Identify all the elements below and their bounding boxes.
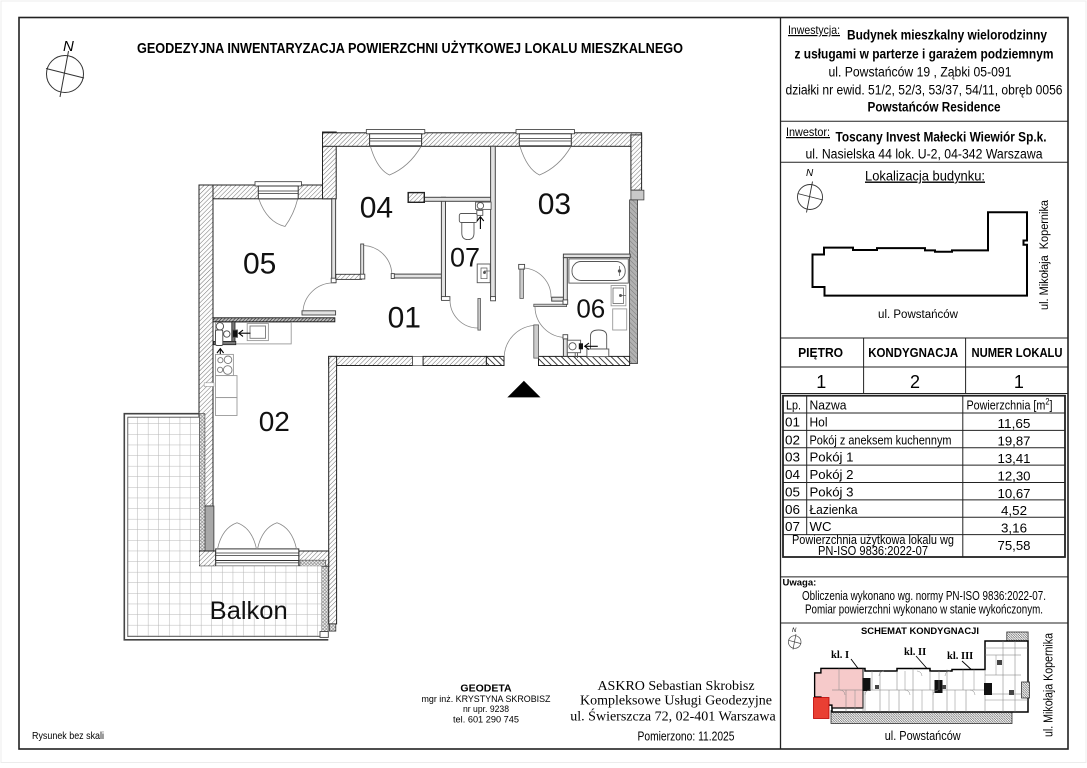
svg-text:Balkon: Balkon — [210, 597, 288, 625]
svg-text:tel. 601 290 745: tel. 601 290 745 — [453, 715, 519, 726]
svg-text:kl. II: kl. II — [904, 647, 926, 658]
svg-text:ul. Powstańców 19 , Ząbki 05-0: ul. Powstańców 19 , Ząbki 05-091 — [829, 65, 1012, 80]
svg-text:GEODETA: GEODETA — [460, 683, 512, 695]
svg-text:GEODEZYJNA INWENTARYZACJA POWI: GEODEZYJNA INWENTARYZACJA POWIERZCHNI UŻ… — [137, 40, 683, 57]
svg-text:1: 1 — [1014, 372, 1024, 392]
svg-text:01: 01 — [785, 415, 800, 430]
svg-text:05: 05 — [785, 485, 800, 500]
svg-text:Pokój 1: Pokój 1 — [810, 450, 854, 465]
svg-text:ul. Powstańców: ul. Powstańców — [878, 309, 959, 321]
svg-text:Powierzchnia [m2]: Powierzchnia [m2] — [967, 397, 1053, 413]
svg-text:Kompleksowe Usługi Geodezyjne: Kompleksowe Usługi Geodezyjne — [580, 694, 772, 709]
svg-text:10,67: 10,67 — [998, 486, 1031, 501]
svg-text:Pokój 2: Pokój 2 — [810, 467, 854, 482]
svg-text:13,41: 13,41 — [998, 451, 1031, 466]
svg-text:06: 06 — [576, 294, 605, 324]
svg-text:Budynek mieszkalny wielorodzin: Budynek mieszkalny wielorodzinny — [847, 28, 1047, 43]
svg-text:Pokój z aneksem kuchennym: Pokój z aneksem kuchennym — [810, 432, 952, 447]
svg-text:N: N — [806, 168, 814, 179]
svg-text:19,87: 19,87 — [998, 434, 1031, 449]
svg-text:07: 07 — [450, 243, 480, 273]
svg-text:N: N — [792, 628, 797, 634]
svg-text:działki nr ewid. 51/2, 52/3, 5: działki nr ewid. 51/2, 52/3, 53/37, 54/1… — [786, 83, 1063, 98]
svg-text:Pomierzono: 11.2025: Pomierzono: 11.2025 — [638, 730, 735, 744]
svg-text:ASKRO Sebastian Skrobisz: ASKRO Sebastian Skrobisz — [597, 679, 754, 694]
svg-text:Uwaga:: Uwaga: — [783, 578, 817, 589]
svg-text:SCHEMAT KONDYGNACJI: SCHEMAT KONDYGNACJI — [861, 626, 979, 637]
svg-text:z usługami w parterze i garaże: z usługami w parterze i garażem podziemn… — [795, 47, 1054, 62]
svg-text:Łazienka: Łazienka — [810, 502, 859, 517]
svg-text:ul. Powstańców: ul. Powstańców — [885, 729, 962, 743]
svg-text:06: 06 — [785, 502, 800, 517]
svg-text:03: 03 — [785, 450, 800, 465]
svg-text:Powstańców Residence: Powstańców Residence — [868, 100, 1001, 115]
svg-text:12,30: 12,30 — [998, 468, 1031, 483]
svg-text:4,52: 4,52 — [1001, 503, 1027, 518]
svg-text:kl. III: kl. III — [947, 651, 973, 662]
svg-text:11,65: 11,65 — [998, 416, 1031, 431]
svg-text:ul. Nasielska 44 lok. U-2, 04-: ul. Nasielska 44 lok. U-2, 04-342 Warsza… — [806, 147, 1043, 162]
svg-text:ul. Mikołaja Kopernika: ul. Mikołaja Kopernika — [1042, 633, 1056, 737]
svg-text:N: N — [63, 38, 74, 55]
svg-text:Lp.: Lp. — [786, 398, 801, 413]
svg-text:PIĘTRO: PIĘTRO — [798, 345, 843, 360]
svg-text:Nazwa: Nazwa — [810, 398, 848, 413]
svg-text:02: 02 — [785, 432, 800, 447]
svg-text:ul. Świerszcza 72, 02-401 Wars: ul. Świerszcza 72, 02-401 Warszawa — [570, 708, 776, 725]
svg-text:3,16: 3,16 — [1001, 520, 1027, 535]
svg-text:Hol: Hol — [810, 415, 828, 430]
svg-text:03: 03 — [538, 188, 571, 221]
svg-text:Pomiar powierzchni wykonano w: Pomiar powierzchni wykonano w stanie wyk… — [805, 603, 1043, 617]
svg-text:kl. I: kl. I — [831, 650, 849, 661]
svg-text:01: 01 — [388, 301, 421, 334]
svg-text:Lokalizacja budynku:: Lokalizacja budynku: — [865, 168, 985, 184]
svg-text:KONDYGNACJA: KONDYGNACJA — [868, 345, 959, 360]
svg-text:04: 04 — [785, 467, 800, 482]
svg-text:Pokój 3: Pokój 3 — [810, 485, 854, 500]
svg-text:NUMER LOKALU: NUMER LOKALU — [972, 345, 1063, 360]
svg-text:nr upr. 9238: nr upr. 9238 — [463, 704, 509, 715]
svg-text:Inwestor:: Inwestor: — [786, 125, 830, 139]
svg-text:Obliczenia wykonano wg. normy: Obliczenia wykonano wg. normy PN-ISO 983… — [802, 589, 1046, 603]
svg-text:75,58: 75,58 — [998, 538, 1031, 553]
svg-text:Inwestycja:: Inwestycja: — [788, 23, 840, 37]
svg-text:Toscany Invest Małecki Wiewiór: Toscany Invest Małecki Wiewiór Sp.k. — [836, 130, 1047, 145]
svg-text:1: 1 — [816, 372, 826, 392]
svg-text:PN-ISO 9836:2022-07: PN-ISO 9836:2022-07 — [818, 543, 928, 558]
svg-text:02: 02 — [259, 406, 290, 437]
svg-text:ul. Mikołaja Kopernika: ul. Mikołaja Kopernika — [1039, 199, 1051, 310]
svg-text:Rysunek bez skali: Rysunek bez skali — [32, 730, 104, 742]
svg-text:05: 05 — [243, 247, 276, 280]
svg-text:2: 2 — [910, 372, 920, 392]
svg-text:04: 04 — [360, 192, 393, 225]
